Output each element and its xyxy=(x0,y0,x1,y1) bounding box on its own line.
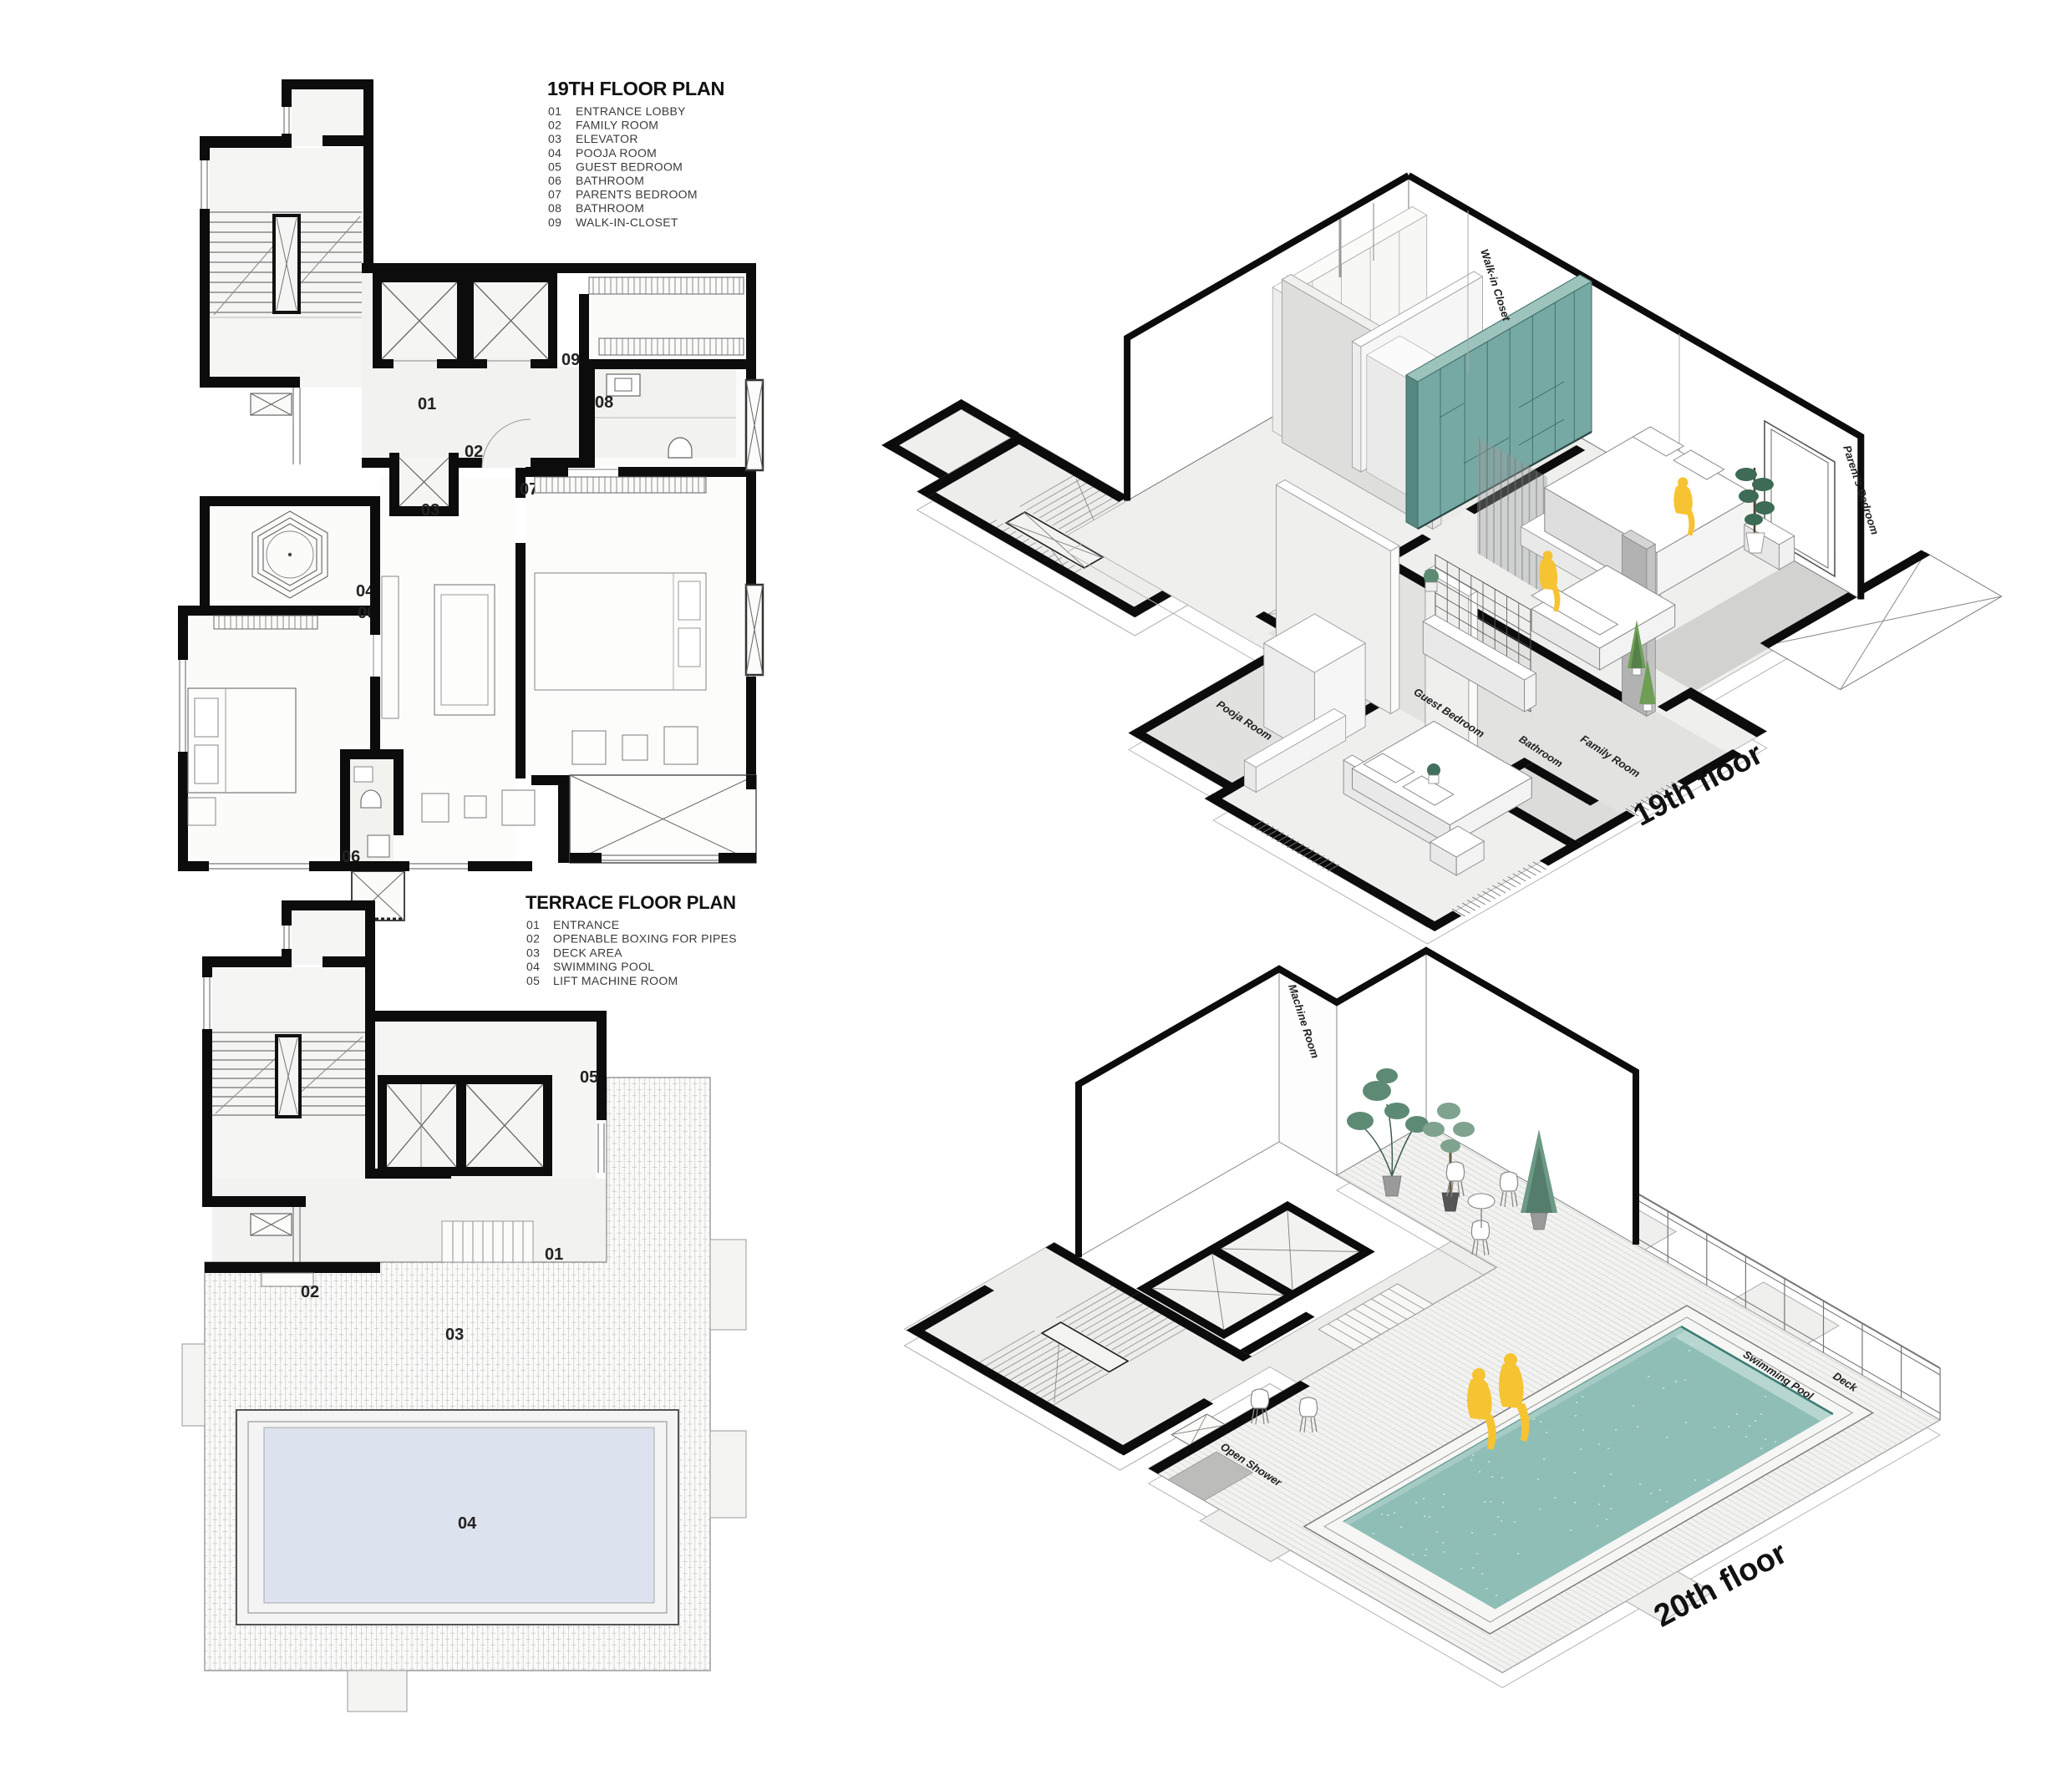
svg-text:BATHROOM: BATHROOM xyxy=(576,174,644,187)
svg-text:04: 04 xyxy=(458,1514,477,1533)
svg-text:LIFT MACHINE ROOM: LIFT MACHINE ROOM xyxy=(553,974,678,987)
svg-text:BATHROOM: BATHROOM xyxy=(576,201,644,215)
svg-text:OPENABLE BOXING FOR PIPES: OPENABLE BOXING FOR PIPES xyxy=(553,932,737,946)
svg-text:PARENTS BEDROOM: PARENTS BEDROOM xyxy=(576,188,698,201)
svg-text:WALK-IN-CLOSET: WALK-IN-CLOSET xyxy=(576,216,678,229)
svg-text:09: 09 xyxy=(561,351,580,369)
svg-text:ENTRANCE: ENTRANCE xyxy=(553,918,619,931)
svg-text:09: 09 xyxy=(548,216,561,229)
svg-text:06: 06 xyxy=(548,174,561,187)
svg-text:02: 02 xyxy=(465,443,483,461)
svg-text:DECK AREA: DECK AREA xyxy=(553,946,622,959)
svg-text:SWIMMING POOL: SWIMMING POOL xyxy=(553,960,654,973)
svg-text:POOJA ROOM: POOJA ROOM xyxy=(576,146,657,160)
svg-text:01: 01 xyxy=(545,1245,563,1264)
svg-text:02: 02 xyxy=(526,932,540,946)
svg-text:GUEST BEDROOM: GUEST BEDROOM xyxy=(576,160,683,173)
svg-text:02: 02 xyxy=(548,119,561,132)
svg-text:07: 07 xyxy=(548,188,561,201)
svg-text:ELEVATOR: ELEVATOR xyxy=(576,132,638,145)
svg-text:05: 05 xyxy=(580,1068,598,1087)
svg-text:01: 01 xyxy=(548,104,561,118)
svg-text:01: 01 xyxy=(526,918,540,931)
svg-text:02: 02 xyxy=(301,1283,319,1301)
svg-text:ENTRANCE LOBBY: ENTRANCE LOBBY xyxy=(576,104,686,118)
svg-text:05: 05 xyxy=(548,160,561,173)
svg-text:19TH FLOOR PLAN: 19TH FLOOR PLAN xyxy=(547,78,724,99)
svg-text:03: 03 xyxy=(421,501,439,520)
svg-text:08: 08 xyxy=(595,393,613,412)
svg-text:03: 03 xyxy=(526,946,540,959)
svg-text:08: 08 xyxy=(548,201,561,215)
svg-text:TERRACE FLOOR PLAN: TERRACE FLOOR PLAN xyxy=(526,892,736,913)
svg-text:03: 03 xyxy=(445,1326,464,1344)
svg-text:04: 04 xyxy=(548,146,561,160)
svg-text:FAMILY ROOM: FAMILY ROOM xyxy=(576,119,658,132)
svg-text:05: 05 xyxy=(526,974,540,987)
svg-text:01: 01 xyxy=(418,395,436,413)
svg-text:04: 04 xyxy=(526,960,540,973)
svg-text:03: 03 xyxy=(548,132,561,145)
